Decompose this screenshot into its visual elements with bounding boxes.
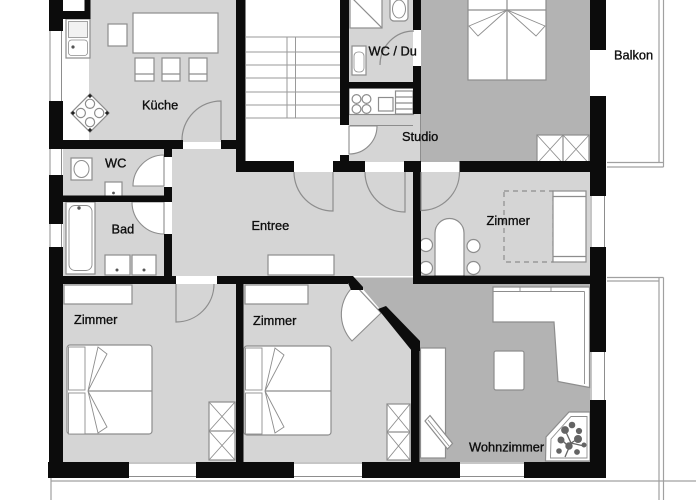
svg-text:Entree: Entree (252, 218, 290, 233)
svg-text:WC: WC (105, 156, 126, 171)
svg-text:Zimmer: Zimmer (487, 213, 531, 228)
svg-text:WC / Du: WC / Du (369, 44, 417, 59)
svg-text:Wohnzimmer: Wohnzimmer (469, 440, 545, 455)
svg-text:Küche: Küche (142, 98, 178, 113)
svg-text:Balkon: Balkon (614, 48, 653, 63)
svg-text:Zimmer: Zimmer (253, 313, 297, 328)
svg-text:Studio: Studio (402, 129, 438, 144)
svg-text:Bad: Bad (112, 222, 135, 237)
svg-text:Zimmer: Zimmer (74, 312, 118, 327)
